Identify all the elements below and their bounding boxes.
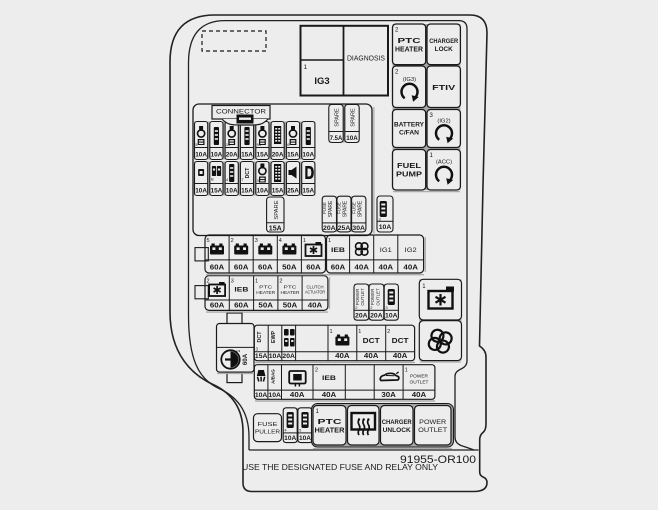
- svg-text:4: 4: [279, 238, 282, 244]
- svg-text:PTC: PTC: [398, 38, 421, 45]
- svg-text:1: 1: [328, 238, 331, 244]
- svg-text:DCT: DCT: [392, 338, 410, 345]
- svg-text:LOCK: LOCK: [435, 46, 454, 53]
- svg-text:40A: 40A: [364, 353, 379, 360]
- svg-text:15A: 15A: [257, 152, 269, 159]
- svg-text:BATTERY: BATTERY: [394, 122, 425, 129]
- svg-text:IEB: IEB: [234, 287, 248, 294]
- svg-text:10A: 10A: [299, 435, 311, 442]
- svg-text:PTC: PTC: [259, 285, 273, 291]
- svg-text:40A: 40A: [379, 263, 394, 272]
- svg-text:1: 1: [255, 279, 258, 285]
- svg-text:40A: 40A: [335, 353, 350, 360]
- svg-text:POWER: POWER: [355, 289, 360, 306]
- svg-text:2: 2: [315, 368, 318, 374]
- svg-text:PUMP: PUMP: [396, 172, 422, 179]
- svg-text:HEATER: HEATER: [281, 290, 301, 296]
- svg-text:PULLER: PULLER: [255, 430, 280, 436]
- svg-text:10A: 10A: [284, 435, 296, 442]
- svg-text:PTC: PTC: [284, 285, 298, 291]
- svg-text:7.5A: 7.5A: [330, 135, 343, 142]
- svg-text:UNLOCK: UNLOCK: [383, 427, 411, 434]
- svg-text:SPARE: SPARE: [274, 200, 280, 219]
- svg-text:10A: 10A: [195, 152, 207, 159]
- svg-text:DCT: DCT: [245, 167, 251, 178]
- svg-text:IEB: IEB: [331, 247, 345, 254]
- svg-text:ACTUATOR: ACTUATOR: [305, 290, 325, 295]
- svg-text:1: 1: [236, 350, 242, 353]
- svg-text:SPARE: SPARE: [335, 108, 341, 127]
- svg-text:HEATER: HEATER: [315, 426, 346, 435]
- svg-text:20A: 20A: [282, 353, 295, 360]
- svg-text:SPARE: SPARE: [343, 200, 349, 217]
- svg-text:3: 3: [231, 279, 234, 285]
- svg-text:60A: 60A: [306, 263, 321, 272]
- svg-text:10A: 10A: [269, 353, 282, 360]
- svg-text:10A: 10A: [226, 188, 238, 195]
- svg-text:10A: 10A: [302, 152, 314, 159]
- svg-text:SPARE: SPARE: [351, 108, 357, 127]
- svg-text:40A: 40A: [308, 301, 323, 310]
- svg-text:20A: 20A: [272, 152, 284, 159]
- svg-text:40A: 40A: [290, 392, 305, 399]
- svg-text:IEB: IEB: [322, 375, 336, 382]
- svg-text:OUTLET: OUTLET: [410, 380, 429, 386]
- svg-text:2: 2: [279, 279, 282, 285]
- svg-text:SPARE: SPARE: [357, 200, 363, 217]
- svg-text:IG2: IG2: [405, 247, 418, 254]
- svg-text:15A: 15A: [272, 188, 284, 195]
- svg-text:(ACC): (ACC): [436, 160, 452, 166]
- svg-text:IG3: IG3: [314, 76, 329, 87]
- svg-text:15A: 15A: [269, 226, 282, 233]
- svg-text:OUTLET: OUTLET: [418, 427, 447, 434]
- svg-text:POWER: POWER: [419, 419, 446, 426]
- svg-text:IG1: IG1: [380, 247, 393, 254]
- svg-text:20A: 20A: [226, 152, 238, 159]
- svg-text:40A: 40A: [412, 392, 427, 399]
- svg-text:10A: 10A: [211, 152, 223, 159]
- svg-text:25A: 25A: [338, 225, 351, 232]
- svg-text:DIAGNOSIS: DIAGNOSIS: [347, 56, 385, 63]
- svg-text:60A: 60A: [242, 353, 249, 365]
- svg-text:CHARGER: CHARGER: [429, 38, 458, 45]
- svg-text:1: 1: [303, 238, 306, 244]
- svg-text:2: 2: [387, 329, 390, 335]
- svg-text:POWER: POWER: [410, 374, 429, 380]
- svg-text:1: 1: [304, 64, 308, 71]
- svg-text:FTIV: FTIV: [432, 83, 455, 92]
- svg-text:10A: 10A: [257, 188, 269, 195]
- svg-text:(IG2): (IG2): [437, 119, 450, 125]
- svg-text:60A: 60A: [210, 263, 225, 272]
- svg-text:15A: 15A: [211, 188, 223, 195]
- svg-text:3: 3: [255, 238, 258, 244]
- svg-text:FUSE: FUSE: [351, 202, 356, 214]
- svg-text:1: 1: [330, 329, 333, 335]
- svg-text:DCT: DCT: [363, 338, 381, 345]
- svg-text:10A: 10A: [268, 392, 281, 399]
- svg-text:10A: 10A: [379, 224, 392, 231]
- svg-text:C/FAN: C/FAN: [399, 130, 420, 137]
- svg-text:DCT: DCT: [257, 331, 263, 343]
- svg-text:POWER: POWER: [370, 289, 375, 306]
- svg-text:40A: 40A: [354, 263, 369, 272]
- svg-text:10A: 10A: [346, 135, 358, 142]
- svg-text:60A: 60A: [331, 263, 346, 272]
- svg-text:40A: 40A: [322, 392, 337, 399]
- svg-text:91: 91: [257, 142, 262, 147]
- svg-text:FUEL: FUEL: [397, 163, 422, 170]
- svg-text:25A: 25A: [287, 188, 299, 195]
- svg-text:20A: 20A: [355, 313, 368, 320]
- svg-text:CHARGER: CHARGER: [382, 419, 412, 426]
- svg-text:60A: 60A: [234, 263, 249, 272]
- svg-text:15A: 15A: [302, 188, 314, 195]
- svg-text:10: 10: [226, 142, 231, 147]
- svg-text:15A: 15A: [255, 353, 268, 360]
- svg-text:FUSE: FUSE: [258, 422, 278, 428]
- svg-text:50A: 50A: [282, 263, 297, 272]
- svg-text:15A: 15A: [241, 188, 253, 195]
- svg-text:FUSE: FUSE: [337, 202, 342, 214]
- svg-text:A/BAG: A/BAG: [271, 369, 276, 384]
- svg-text:30A: 30A: [352, 225, 365, 232]
- svg-text:10A: 10A: [255, 392, 268, 399]
- svg-text:30A: 30A: [381, 392, 396, 399]
- svg-text:20A: 20A: [370, 313, 383, 320]
- svg-text:CONNECTOR: CONNECTOR: [216, 109, 266, 116]
- svg-text:OUTLET: OUTLET: [360, 288, 365, 306]
- svg-text:40A: 40A: [403, 263, 418, 272]
- svg-text:15A: 15A: [241, 152, 253, 159]
- svg-text:B: B: [211, 177, 214, 182]
- svg-text:HEATER: HEATER: [256, 290, 276, 296]
- svg-text:10A: 10A: [195, 188, 207, 195]
- svg-text:(IG3): (IG3): [403, 77, 416, 83]
- svg-text:50A: 50A: [283, 301, 298, 310]
- svg-text:2: 2: [231, 238, 234, 244]
- svg-text:HEATER: HEATER: [395, 47, 423, 54]
- svg-text:EWP: EWP: [271, 330, 277, 343]
- svg-text:OUTLET: OUTLET: [375, 288, 380, 306]
- svg-text:FUSE: FUSE: [322, 202, 327, 214]
- svg-text:SPARE: SPARE: [328, 200, 334, 217]
- svg-text:60A: 60A: [234, 301, 249, 310]
- svg-text:10A: 10A: [385, 313, 398, 320]
- svg-text:1: 1: [405, 368, 408, 374]
- svg-text:15A: 15A: [287, 152, 299, 159]
- svg-text:20A: 20A: [323, 225, 336, 232]
- svg-text:60A: 60A: [210, 301, 225, 310]
- svg-text:91955-OR100: 91955-OR100: [400, 454, 476, 466]
- svg-text:1: 1: [358, 329, 361, 335]
- svg-text:5: 5: [207, 238, 210, 244]
- svg-text:60A: 60A: [258, 263, 273, 272]
- svg-text:40A: 40A: [393, 353, 408, 360]
- svg-text:50A: 50A: [258, 301, 273, 310]
